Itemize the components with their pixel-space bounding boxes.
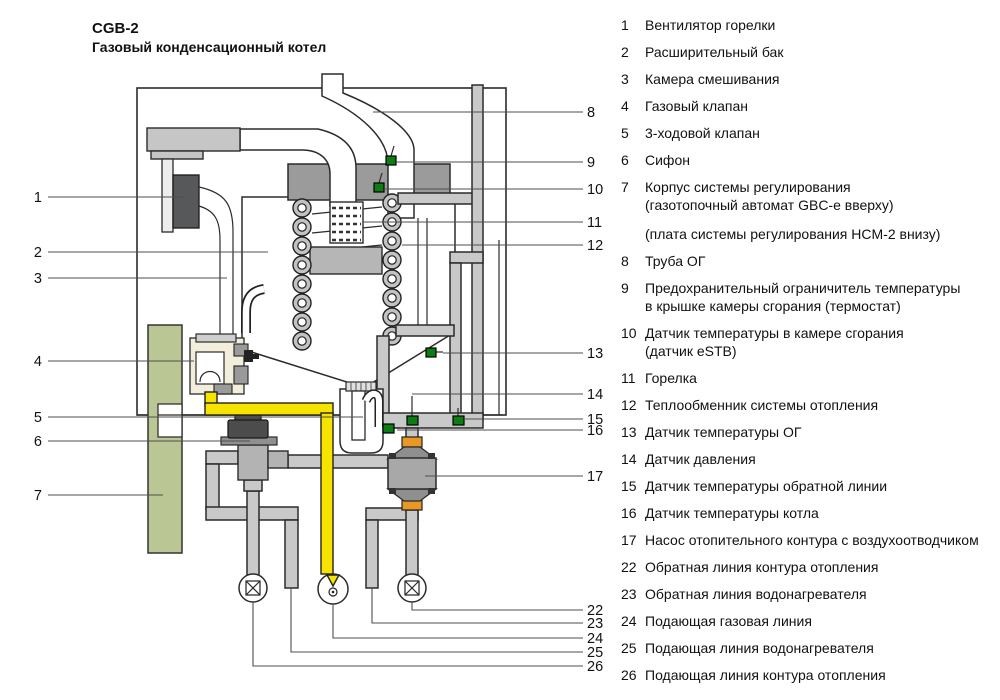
callout-number: 16 xyxy=(587,423,603,439)
legend-item-number: 17 xyxy=(621,531,645,549)
legend-item: 2 Расширительный бак xyxy=(621,43,993,61)
legend-item-text: Обратная линия водонагревателя xyxy=(645,585,993,603)
legend-item: 22 Обратная линия контура отопления xyxy=(621,558,993,576)
callout-number: 4 xyxy=(34,354,42,370)
heating-return-valve xyxy=(398,574,426,602)
legend-item: 8 Труба ОГ xyxy=(621,252,993,270)
callout-number: 26 xyxy=(587,659,603,675)
legend-item: 23 Обратная линия водонагревателя xyxy=(621,585,993,603)
legend-item: 6 Сифон xyxy=(621,151,993,169)
legend-item-number: 23 xyxy=(621,585,645,603)
legend-item: 7 Корпус системы регулирования (газотопо… xyxy=(621,178,993,243)
callout-number: 8 xyxy=(587,105,595,121)
legend-item: 4 Газовый клапан xyxy=(621,97,993,115)
legend-item: 5 3-ходовой клапан xyxy=(621,124,993,142)
legend-item-text: Предохранительный ограничитель температу… xyxy=(645,279,993,297)
callout-number: 3 xyxy=(34,271,42,287)
callout-number: 7 xyxy=(34,488,42,504)
legend-item-number: 10 xyxy=(621,324,645,360)
legend-item-text: Датчик температуры обратной линии xyxy=(645,477,993,495)
legend-item-number: 11 xyxy=(621,369,645,387)
legend-item-number: 12 xyxy=(621,396,645,414)
legend-item-text: Камера смешивания xyxy=(645,70,993,88)
callout-number: 17 xyxy=(587,469,603,485)
callout-number: 1 xyxy=(34,190,42,206)
legend-item-number: 26 xyxy=(621,666,645,684)
legend-item-number: 13 xyxy=(621,423,645,441)
legend-item-text: Обратная линия контура отопления xyxy=(645,558,993,576)
callout-number: 9 xyxy=(587,155,595,171)
control-housing xyxy=(148,325,182,553)
legend-item-text: (газотопочный автомат GBC-e вверху) xyxy=(645,196,993,214)
legend: 1 Вентилятор горелки 2 Расширительный ба… xyxy=(621,16,993,693)
legend-item-text: Газовый клапан xyxy=(645,97,993,115)
legend-item-number: 6 xyxy=(621,151,645,169)
legend-item-text: Подающая линия водонагревателя xyxy=(645,639,993,657)
legend-item: 12 Теплообменник системы отопления xyxy=(621,396,993,414)
legend-item-text: (датчик eSTB) xyxy=(645,342,993,360)
callout-number: 2 xyxy=(34,245,42,261)
legend-item-text: Датчик давления xyxy=(645,450,993,468)
legend-item: 24 Подающая газовая линия xyxy=(621,612,993,630)
legend-item-text: (плата системы регулирования HCM-2 внизу… xyxy=(645,225,993,243)
callout-number: 23 xyxy=(587,616,603,632)
legend-item-number: 3 xyxy=(621,70,645,88)
legend-item-number: 4 xyxy=(621,97,645,115)
legend-item: 13 Датчик температуры ОГ xyxy=(621,423,993,441)
legend-item-text: Сифон xyxy=(645,151,993,169)
legend-item-text: Подающая газовая линия xyxy=(645,612,993,630)
gas-cock xyxy=(318,574,348,604)
legend-item-text: Расширительный бак xyxy=(645,43,993,61)
legend-item: 16 Датчик температуры котла xyxy=(621,504,993,522)
legend-item-number: 8 xyxy=(621,252,645,270)
legend-item-text: Теплообменник системы отопления xyxy=(645,396,993,414)
callout-number: 10 xyxy=(587,182,603,198)
legend-item-text: Датчик температуры ОГ xyxy=(645,423,993,441)
legend-item-number: 14 xyxy=(621,450,645,468)
callout-number: 12 xyxy=(587,238,603,254)
legend-item-number: 1 xyxy=(621,16,645,34)
legend-item-number: 9 xyxy=(621,279,645,315)
legend-item-number: 5 xyxy=(621,124,645,142)
legend-item: 10 Датчик температуры в камере сгорания … xyxy=(621,324,993,360)
legend-item-number: 22 xyxy=(621,558,645,576)
legend-item: 14 Датчик давления xyxy=(621,450,993,468)
legend-item-number: 2 xyxy=(621,43,645,61)
legend-item-text: в крышке камеры сгорания (термостат) xyxy=(645,297,993,315)
legend-item: 26 Подающая линия контура отопления xyxy=(621,666,993,684)
legend-item-text: Вентилятор горелки xyxy=(645,16,993,34)
gas-line xyxy=(205,392,333,574)
legend-item-number: 25 xyxy=(621,639,645,657)
legend-item-number: 15 xyxy=(621,477,645,495)
callout-number: 11 xyxy=(587,215,602,231)
legend-item: 17 Насос отопительного контура с воздухо… xyxy=(621,531,993,549)
legend-item-number: 7 xyxy=(621,178,645,243)
legend-item: 1 Вентилятор горелки xyxy=(621,16,993,34)
legend-item: 3 Камера смешивания xyxy=(621,70,993,88)
callout-number: 6 xyxy=(34,434,42,450)
legend-item-number: 24 xyxy=(621,612,645,630)
legend-item-text: Насос отопительного контура с воздухоотв… xyxy=(645,531,993,549)
legend-item-text: Датчик температуры в камере сгорания xyxy=(645,324,993,342)
legend-item-text: Датчик температуры котла xyxy=(645,504,993,522)
legend-item: 11 Горелка xyxy=(621,369,993,387)
legend-item: 9 Предохранительный ограничитель темпера… xyxy=(621,279,993,315)
legend-item-text: 3-ходовой клапан xyxy=(645,124,993,142)
boiler-diagram-page: CGB-2 Газовый конденсационный котел xyxy=(0,0,1000,700)
callout-number: 14 xyxy=(587,387,603,403)
legend-item-text: Подающая линия контура отопления xyxy=(645,666,993,684)
legend-item: 15 Датчик температуры обратной линии xyxy=(621,477,993,495)
legend-item-text: Корпус системы регулирования xyxy=(645,178,993,196)
legend-item-number: 16 xyxy=(621,504,645,522)
legend-item: 25 Подающая линия водонагревателя xyxy=(621,639,993,657)
heating-flow-valve xyxy=(239,574,267,602)
callout-number: 13 xyxy=(587,346,603,362)
legend-item-text: Труба ОГ xyxy=(645,252,993,270)
bottom-connections xyxy=(239,574,426,604)
callout-number: 5 xyxy=(34,410,42,426)
legend-item-text: Горелка xyxy=(645,369,993,387)
